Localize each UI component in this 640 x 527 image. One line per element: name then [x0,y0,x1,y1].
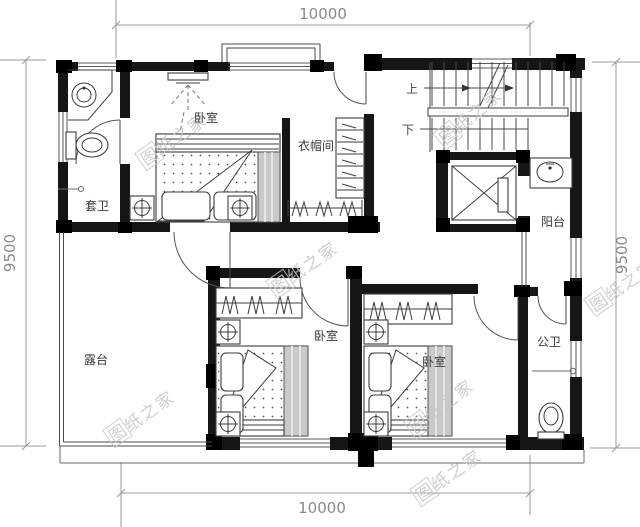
window-right-2 [571,238,581,278]
stair-landing-rail [428,108,568,116]
door-master-terrace [174,232,230,288]
window-bottom-1 [240,439,330,447]
svg-text:图纸之家: 图纸之家 [436,85,507,149]
svg-text:图纸之家: 图纸之家 [106,387,180,447]
watermark-text: 图纸之家 [584,255,640,318]
roof-eave-lines [60,446,584,463]
elevator-door [498,178,508,212]
stair-arrow [462,85,471,92]
wardrobe-cloakroom [288,118,364,216]
door-bedroom-3 [474,296,518,340]
nightstand-lamp-icon [216,320,240,344]
watermark-text: 图纸之家 [410,445,487,508]
bay-window [222,44,320,70]
room-label-balcony: 阳台 [541,214,565,229]
pillow [369,353,391,391]
toilet-icon [538,403,564,439]
room-label-master-bedroom: 卧室 [194,110,218,125]
nightstand-lamp-icon [364,412,388,436]
pillow [162,192,210,220]
stairs-down-label: 下 [402,123,414,137]
room-label-ensuite-bath: 套卫 [85,199,109,213]
room-label-cloakroom: 衣帽间 [298,138,334,153]
room-label-bedroom-2: 卧室 [314,328,338,343]
room-label-bedroom-3: 卧室 [422,354,446,369]
elevator [452,166,516,220]
window-top-bath [78,63,116,70]
dimension-bottom-label: 10000 [298,499,346,517]
watermark-text: 图纸之家 [103,386,180,449]
public-bath-fixtures [532,368,576,439]
svg-text:图纸之家: 图纸之家 [413,446,487,506]
floor-plan-drawing: 10000 10000 9500 9500 [0,0,640,527]
pillow [221,353,243,391]
room-label-terrace: 露台 [84,352,108,367]
room-label-public-bath: 公卫 [537,335,561,349]
window-bottom-2 [392,439,508,447]
nightstand-lamp-icon [364,320,388,344]
stairs-up-label: 上 [406,82,418,96]
label-leader-dot [79,187,84,192]
nightstand-lamp-icon [130,196,154,220]
door-public-bath [538,296,566,324]
dimension-right-label: 9500 [613,236,631,274]
dimension-top-label: 10000 [299,5,347,23]
vanity-counter [68,70,112,120]
sink-icon [530,158,572,188]
nightstand-lamp-icon [216,412,240,436]
nightstand-lamp-icon [228,196,252,220]
door-cloakroom-hall [334,72,366,104]
toilet-icon [66,132,108,159]
door-bedroom-2 [300,278,348,326]
stair-arrow [505,85,514,92]
dimension-left-label: 9500 [1,234,19,272]
floor-plan-page: 10000 10000 9500 9500 [0,0,640,527]
window-right-1 [571,78,581,112]
